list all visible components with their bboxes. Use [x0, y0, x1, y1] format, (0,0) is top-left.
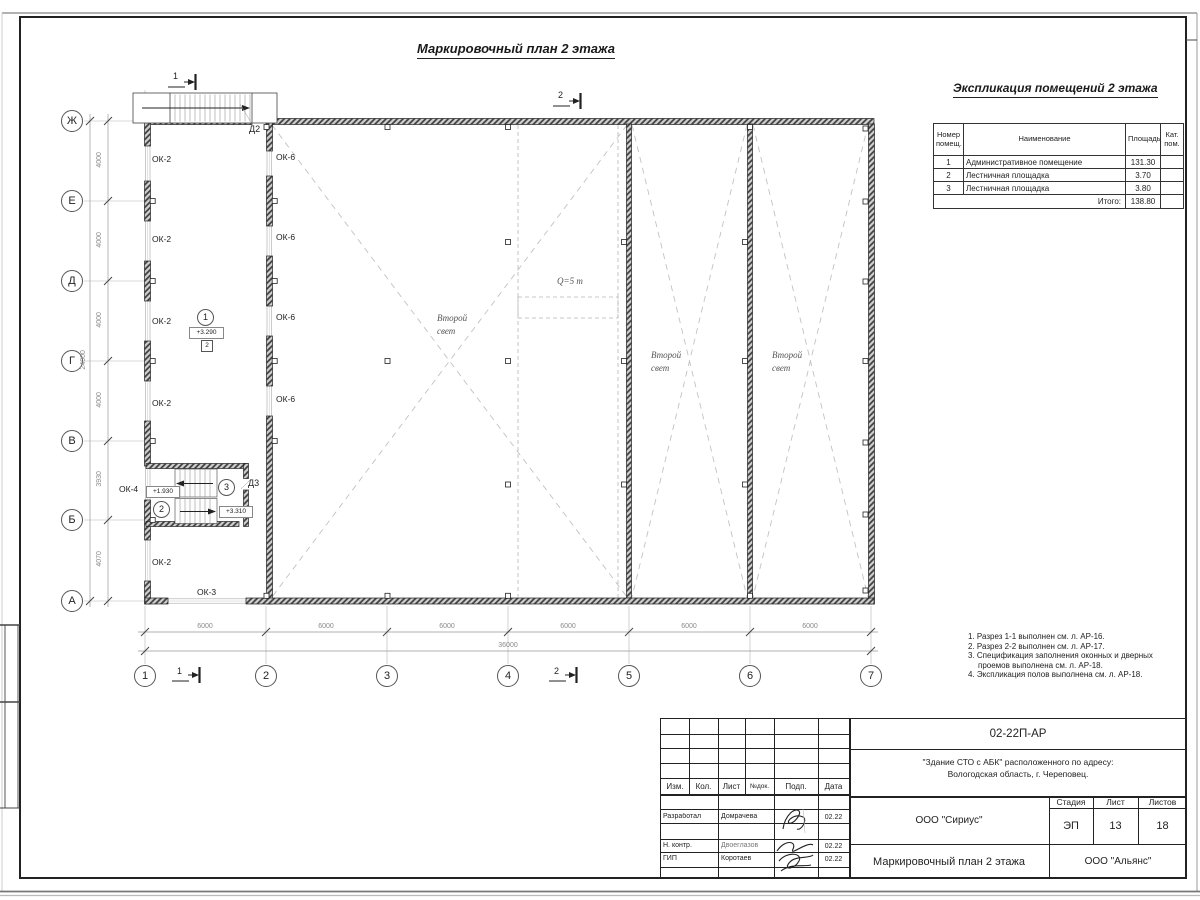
section-mark-1-bottom: 1	[177, 667, 182, 677]
window-label-ok4: ОК-4	[119, 485, 138, 494]
elevation-3290: +3.290	[189, 327, 224, 339]
stamp-col-list: Лист	[718, 778, 745, 794]
window-label-ok2-2: ОК-2	[152, 235, 171, 244]
cell-cat	[1161, 182, 1184, 195]
dim-6000-1: 6000	[185, 623, 225, 631]
axis-col-3: 3	[376, 665, 398, 687]
stamp-col-doc: №док.	[745, 778, 774, 794]
cell-cat	[1161, 169, 1184, 182]
note-4: 4. Экспликация полов выполнена см. л. АР…	[968, 671, 1142, 680]
axis-row-v: В	[61, 430, 83, 452]
dim-6000-3: 6000	[427, 623, 467, 631]
cell-num: 2	[934, 169, 964, 182]
stamp-sheets-value: 18	[1138, 808, 1187, 844]
note-3a: 3. Спецификация заполнения оконных и две…	[968, 652, 1153, 661]
crane-capacity-label: Q=5 т	[557, 277, 583, 287]
table-row: 3 Лестничная площадка 3.80	[934, 182, 1184, 195]
stamp-role-gip: ГИП	[663, 855, 718, 865]
stamp-doc-number: 02-22П-АР	[849, 719, 1187, 749]
stamp-date-developer: 02.22	[818, 812, 849, 823]
section-mark-2-top: 2	[558, 91, 563, 101]
window-label-ok2-4: ОК-2	[152, 399, 171, 408]
cell-cat	[1161, 195, 1184, 209]
stamp-sheet-header: Лист	[1093, 796, 1138, 808]
stamp-col-izm: Изм.	[661, 778, 689, 794]
axis-col-7: 7	[860, 665, 882, 687]
stamp-date-gip: 02.22	[818, 854, 849, 865]
axis-col-2: 2	[255, 665, 277, 687]
stamp-col-date: Дата	[818, 778, 849, 794]
cell-area: 131.30	[1126, 156, 1161, 169]
stamp-role-developer: Разработал	[663, 813, 718, 823]
cell-area: 3.80	[1126, 182, 1161, 195]
dim-4000-4: 4000	[96, 380, 104, 420]
axis-col-4: 4	[497, 665, 519, 687]
second-light-label-1a: Второй	[437, 314, 467, 324]
dim-6000-2: 6000	[306, 623, 346, 631]
total-value: 138.80	[1126, 195, 1161, 209]
stamp-col-kol: Кол.	[689, 778, 718, 794]
dim-6000-6: 6000	[790, 623, 830, 631]
section-mark-1-top: 1	[173, 72, 178, 82]
room-tag-3: 3	[218, 479, 235, 496]
cell-cat	[1161, 156, 1184, 169]
stamp-sheets-header: Листов	[1138, 796, 1187, 808]
dim-4000-2: 4000	[96, 220, 104, 260]
col-header-num: Номер помещ.	[934, 124, 964, 156]
stamp-date-ncontrol: 02.22	[818, 841, 849, 852]
window-label-ok6-2: ОК-6	[276, 233, 295, 242]
stamp-drawing-title: Маркировочный план 2 этажа	[849, 844, 1049, 879]
explication-title: Экспликация помещений 2 этажа	[953, 82, 1158, 98]
axis-row-e: Е	[61, 190, 83, 212]
dim-4070: 4070	[96, 539, 104, 579]
signature-developer	[775, 803, 817, 837]
door-label-d2: Д2	[249, 125, 260, 135]
axis-row-d: Д	[61, 270, 83, 292]
axis-row-b: Б	[61, 509, 83, 531]
dim-6000-4: 6000	[548, 623, 588, 631]
page-title: Маркировочный план 2 этажа	[417, 42, 615, 59]
door-label-d3: Д3	[248, 479, 259, 489]
stamp-sheet-value: 13	[1093, 808, 1138, 844]
window-label-ok6-1: ОК-6	[276, 153, 295, 162]
stamp-col-sign: Подп.	[774, 778, 818, 794]
axis-row-zh: Ж	[61, 110, 83, 132]
axis-col-1: 1	[134, 665, 156, 687]
table-row: 1 Административное помещение 131.30	[934, 156, 1184, 169]
dim-6000-5: 6000	[669, 623, 709, 631]
window-label-ok3: ОК-3	[197, 588, 216, 597]
axis-col-5: 5	[618, 665, 640, 687]
title-block: Изм. Кол. Лист №док. Подп. Дата Разработ…	[660, 718, 1186, 878]
cell-name: Лестничная площадка	[964, 169, 1126, 182]
second-light-label-2b: свет	[651, 364, 669, 374]
drawing-sheet: Маркировочный план 2 этажа Экспликация п…	[0, 0, 1200, 900]
cell-num: 1	[934, 156, 964, 169]
stamp-address-1: "Здание СТО с АБК" расположенного по адр…	[849, 756, 1187, 768]
second-light-label-1b: свет	[437, 327, 455, 337]
note-1: 1. Разрез 1-1 выполнен см. л. АР-16.	[968, 633, 1105, 642]
note-3b: проемов выполнена см. л. АР-18.	[978, 662, 1103, 671]
dim-3930: 3930	[96, 459, 104, 499]
table-row: 2 Лестничная площадка 3.70	[934, 169, 1184, 182]
col-header-area: Площадь	[1126, 124, 1161, 156]
stamp-stage-header: Стадия	[1049, 796, 1093, 808]
second-light-label-3b: свет	[772, 364, 790, 374]
stamp-name-gip: Коротаев	[721, 855, 773, 865]
total-label: Итого:	[934, 195, 1126, 209]
window-label-ok2-3: ОК-2	[152, 317, 171, 326]
dim-4000-1: 4000	[96, 140, 104, 180]
axis-col-6: 6	[739, 665, 761, 687]
window-label-ok6-3: ОК-6	[276, 313, 295, 322]
stamp-address-2: Вологодская область, г. Череповец.	[849, 768, 1187, 780]
second-light-label-2a: Второй	[651, 351, 681, 361]
floor-type-box: 2	[201, 340, 213, 352]
stamp-org2: ООО "Альянс"	[1049, 844, 1187, 879]
section-mark-2-bottom: 2	[554, 667, 559, 677]
room-tag-2: 2	[153, 501, 170, 518]
cell-area: 3.70	[1126, 169, 1161, 182]
elevation-3310: +3.310	[219, 506, 253, 518]
dim-4000-3: 4000	[96, 300, 104, 340]
col-header-cat: Кат. пом.	[1161, 124, 1184, 156]
stamp-name-ncontrol: Двоеглазов	[721, 842, 773, 852]
note-2: 2. Разрез 2-2 выполнен см. л. АР-17.	[968, 643, 1105, 652]
dim-24000: 24000	[80, 340, 88, 380]
table-total-row: Итого: 138.80	[934, 195, 1184, 209]
dim-36000: 36000	[488, 642, 528, 650]
cell-name: Административное помещение	[964, 156, 1126, 169]
window-label-ok6-4: ОК-6	[276, 395, 295, 404]
cell-num: 3	[934, 182, 964, 195]
window-label-ok2-1: ОК-2	[152, 155, 171, 164]
cell-name: Лестничная площадка	[964, 182, 1126, 195]
axis-row-a: А	[61, 590, 83, 612]
explication-table: Номер помещ. Наименование Площадь Кат. п…	[933, 123, 1184, 209]
room-tag-1: 1	[197, 309, 214, 326]
stamp-org: ООО "Сириус"	[849, 796, 1049, 844]
stamp-stage-value: ЭП	[1049, 808, 1093, 844]
interior-stair	[175, 469, 217, 524]
stamp-role-ncontrol: Н. контр.	[663, 842, 718, 852]
col-header-name: Наименование	[964, 124, 1126, 156]
second-light-label-3a: Второй	[772, 351, 802, 361]
elevation-1930: +1.930	[146, 486, 180, 498]
stamp-name-developer: Домрачева	[721, 813, 773, 823]
signature-gip	[773, 837, 819, 877]
window-label-ok2-5: ОК-2	[152, 558, 171, 567]
